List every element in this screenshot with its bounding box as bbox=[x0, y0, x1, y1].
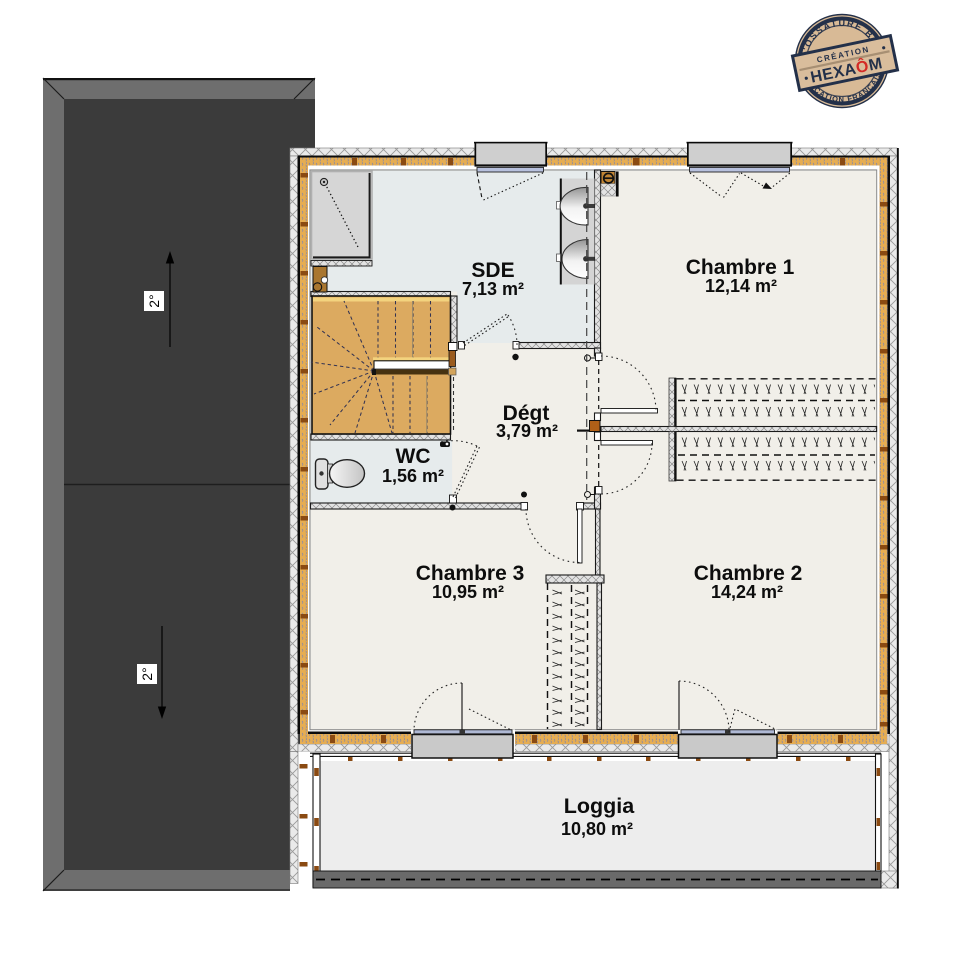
svg-text:14,24 m²: 14,24 m² bbox=[711, 582, 783, 602]
svg-text:WC: WC bbox=[396, 445, 431, 468]
svg-text:10,95 m²: 10,95 m² bbox=[432, 582, 504, 602]
svg-text:3,79 m²: 3,79 m² bbox=[496, 421, 558, 441]
svg-text:2°: 2° bbox=[139, 667, 155, 680]
svg-text:Loggia: Loggia bbox=[564, 794, 636, 818]
svg-text:10,80 m²: 10,80 m² bbox=[561, 819, 633, 839]
svg-text:7,13 m²: 7,13 m² bbox=[462, 279, 524, 299]
svg-text:2°: 2° bbox=[146, 294, 162, 307]
svg-text:1,56 m²: 1,56 m² bbox=[382, 466, 444, 486]
svg-text:12,14 m²: 12,14 m² bbox=[705, 276, 777, 296]
